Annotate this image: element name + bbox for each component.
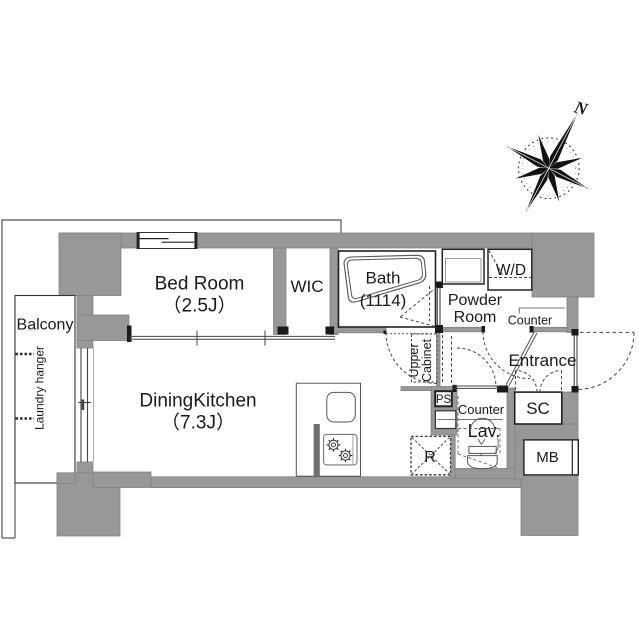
- svg-text:W/D: W/D: [496, 262, 526, 279]
- svg-text:（7.3J）: （7.3J）: [161, 412, 235, 434]
- svg-text:Counter: Counter: [508, 314, 552, 328]
- svg-text:(1114): (1114): [360, 291, 407, 310]
- svg-text:（2.5J）: （2.5J）: [163, 295, 237, 317]
- svg-text:Laundry hanger: Laundry hanger: [33, 346, 47, 430]
- svg-text:WIC: WIC: [290, 277, 323, 296]
- svg-text:Counter: Counter: [458, 402, 505, 417]
- svg-text:Powder: Powder: [448, 292, 503, 309]
- svg-text:MB: MB: [536, 449, 559, 466]
- svg-text:Bed Room: Bed Room: [155, 274, 245, 295]
- svg-text:Upper: Upper: [407, 343, 421, 377]
- svg-text:PS: PS: [436, 394, 452, 406]
- svg-text:SC: SC: [526, 399, 550, 418]
- svg-text:N: N: [571, 96, 591, 119]
- svg-text:Bath: Bath: [366, 269, 401, 288]
- svg-text:R: R: [424, 449, 436, 466]
- svg-text:Balcony: Balcony: [17, 317, 74, 334]
- svg-text:DiningKitchen: DiningKitchen: [139, 391, 256, 412]
- svg-text:Room: Room: [454, 309, 497, 326]
- svg-text:Cabinet: Cabinet: [420, 338, 434, 382]
- svg-text:Entrance: Entrance: [508, 351, 576, 370]
